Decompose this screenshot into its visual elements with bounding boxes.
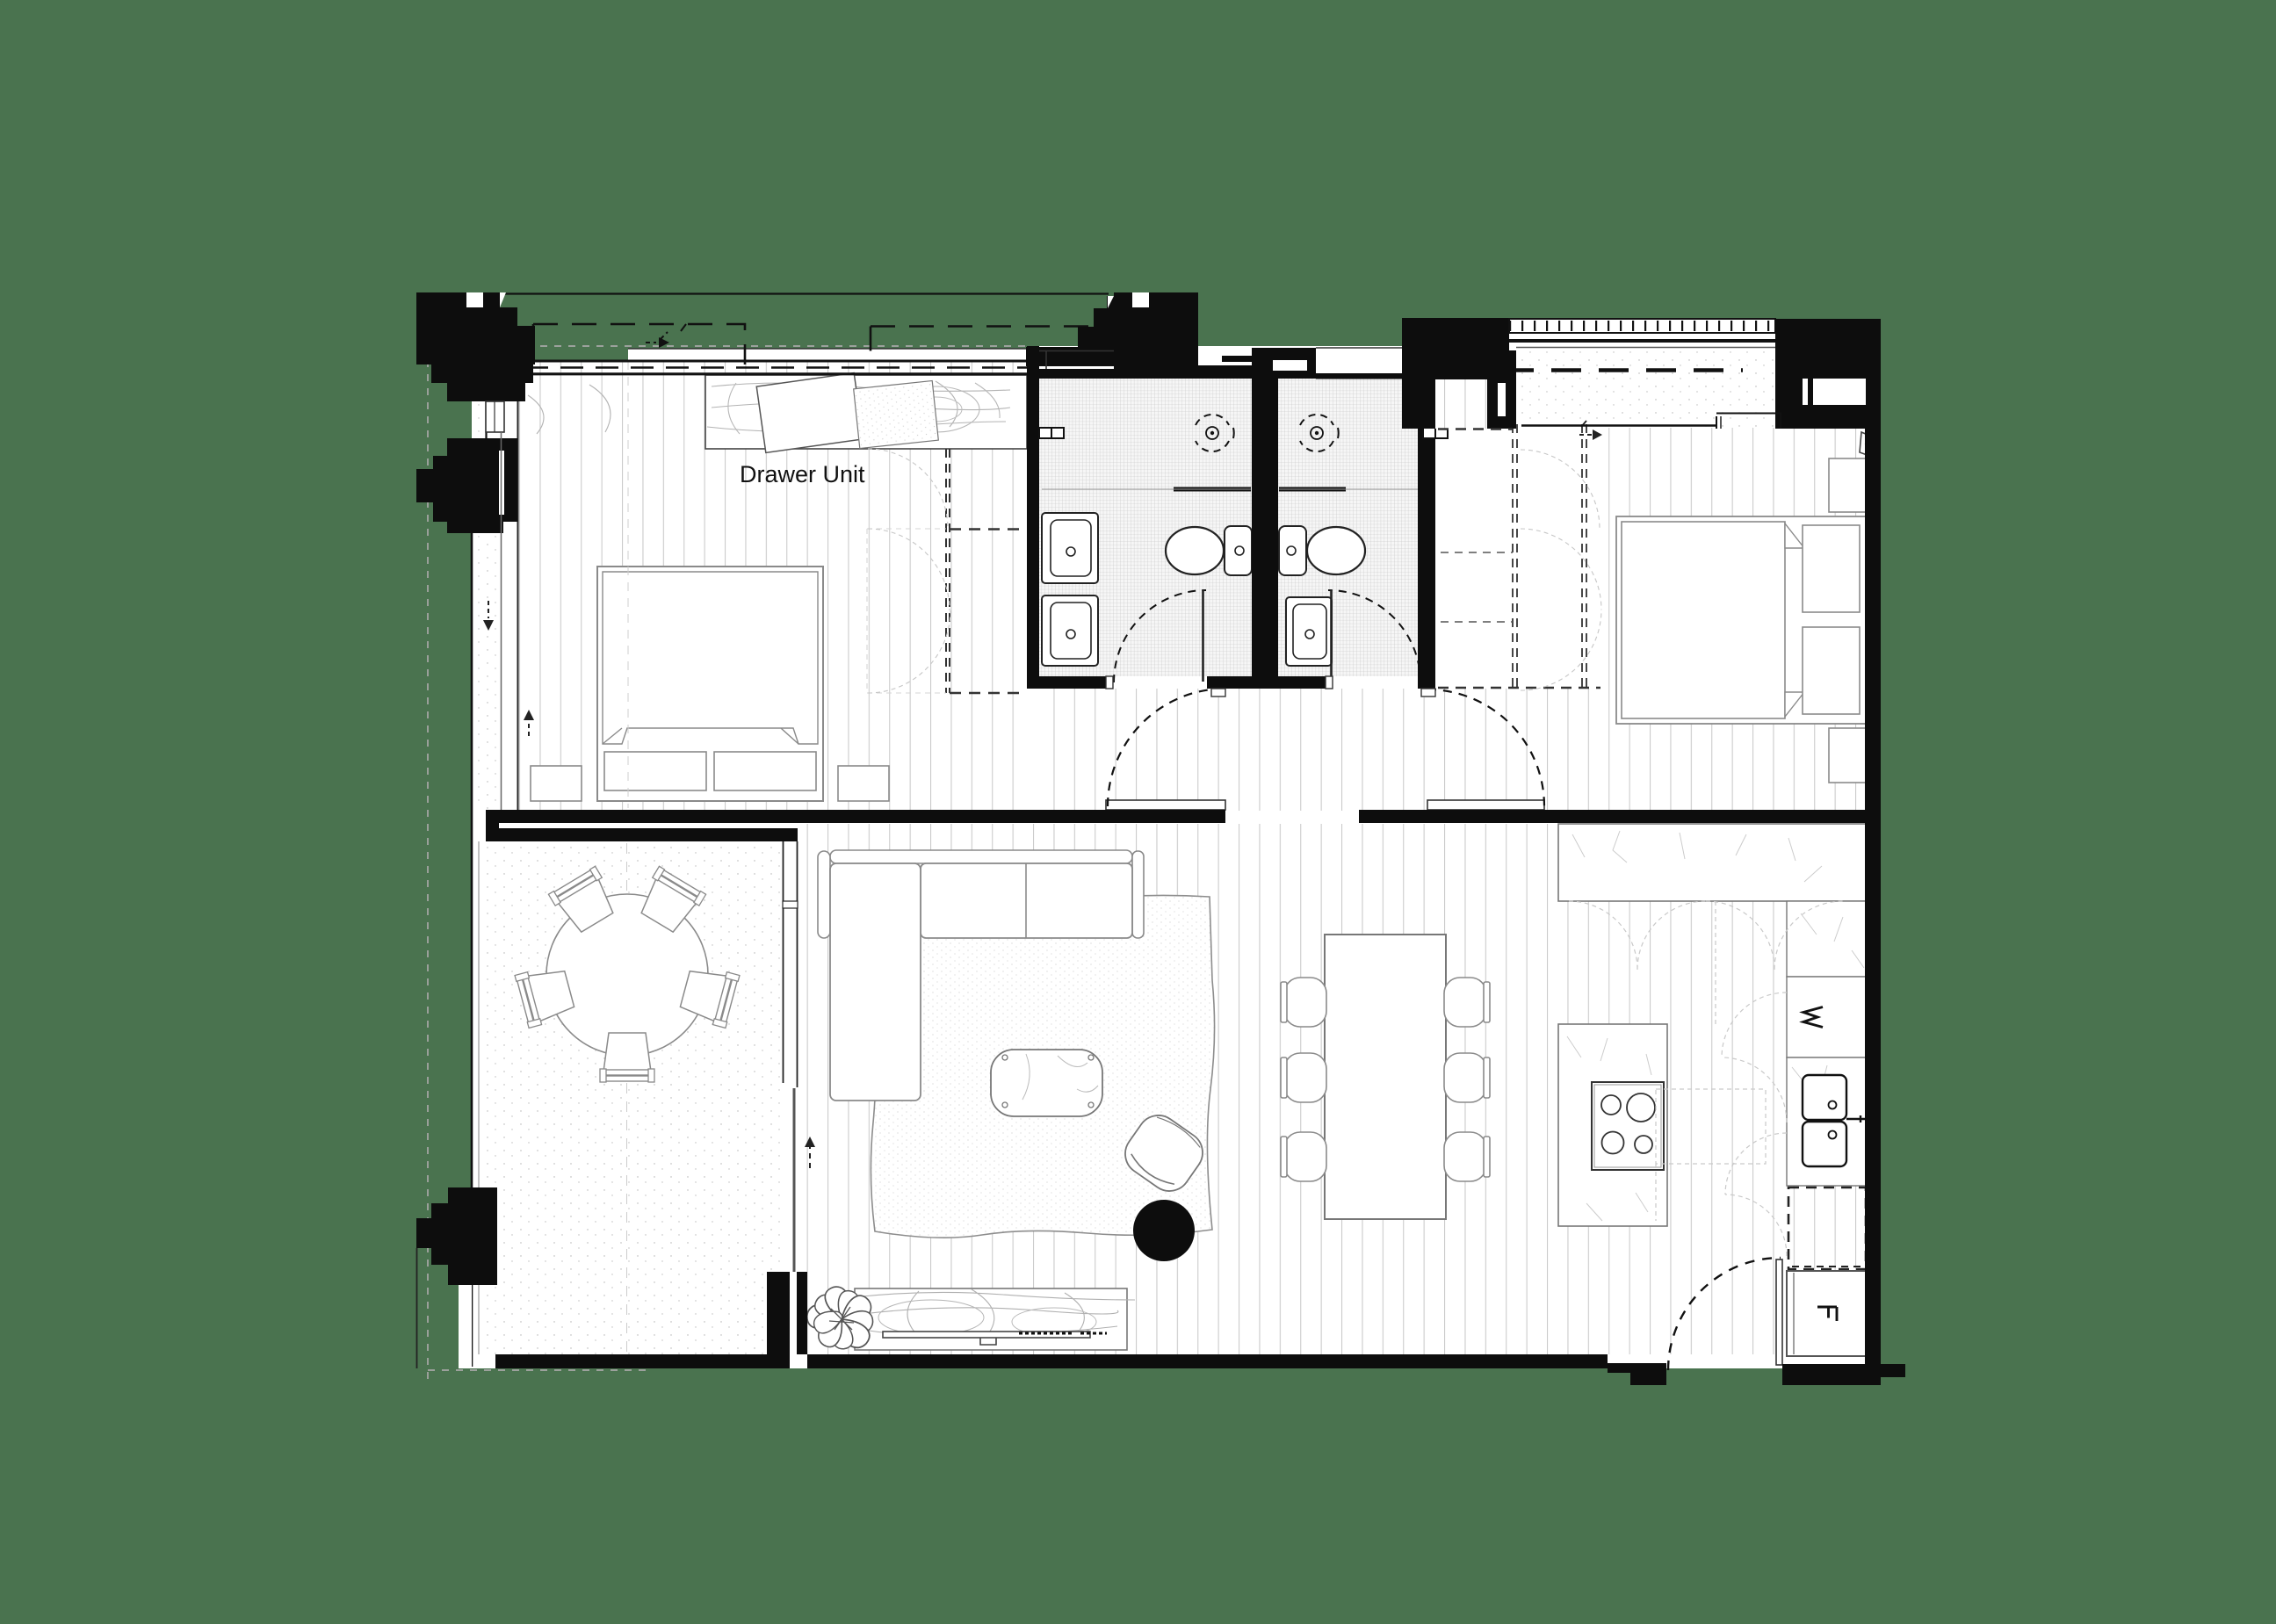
svg-text:Drawer Unit: Drawer Unit <box>740 461 865 487</box>
